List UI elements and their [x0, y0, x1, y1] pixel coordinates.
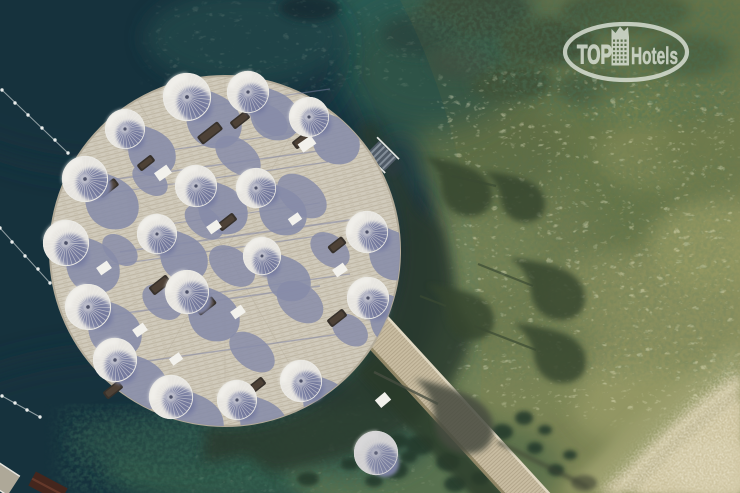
svg-text:Hotels: Hotels — [631, 43, 678, 70]
svg-text:TOP: TOP — [577, 40, 612, 70]
